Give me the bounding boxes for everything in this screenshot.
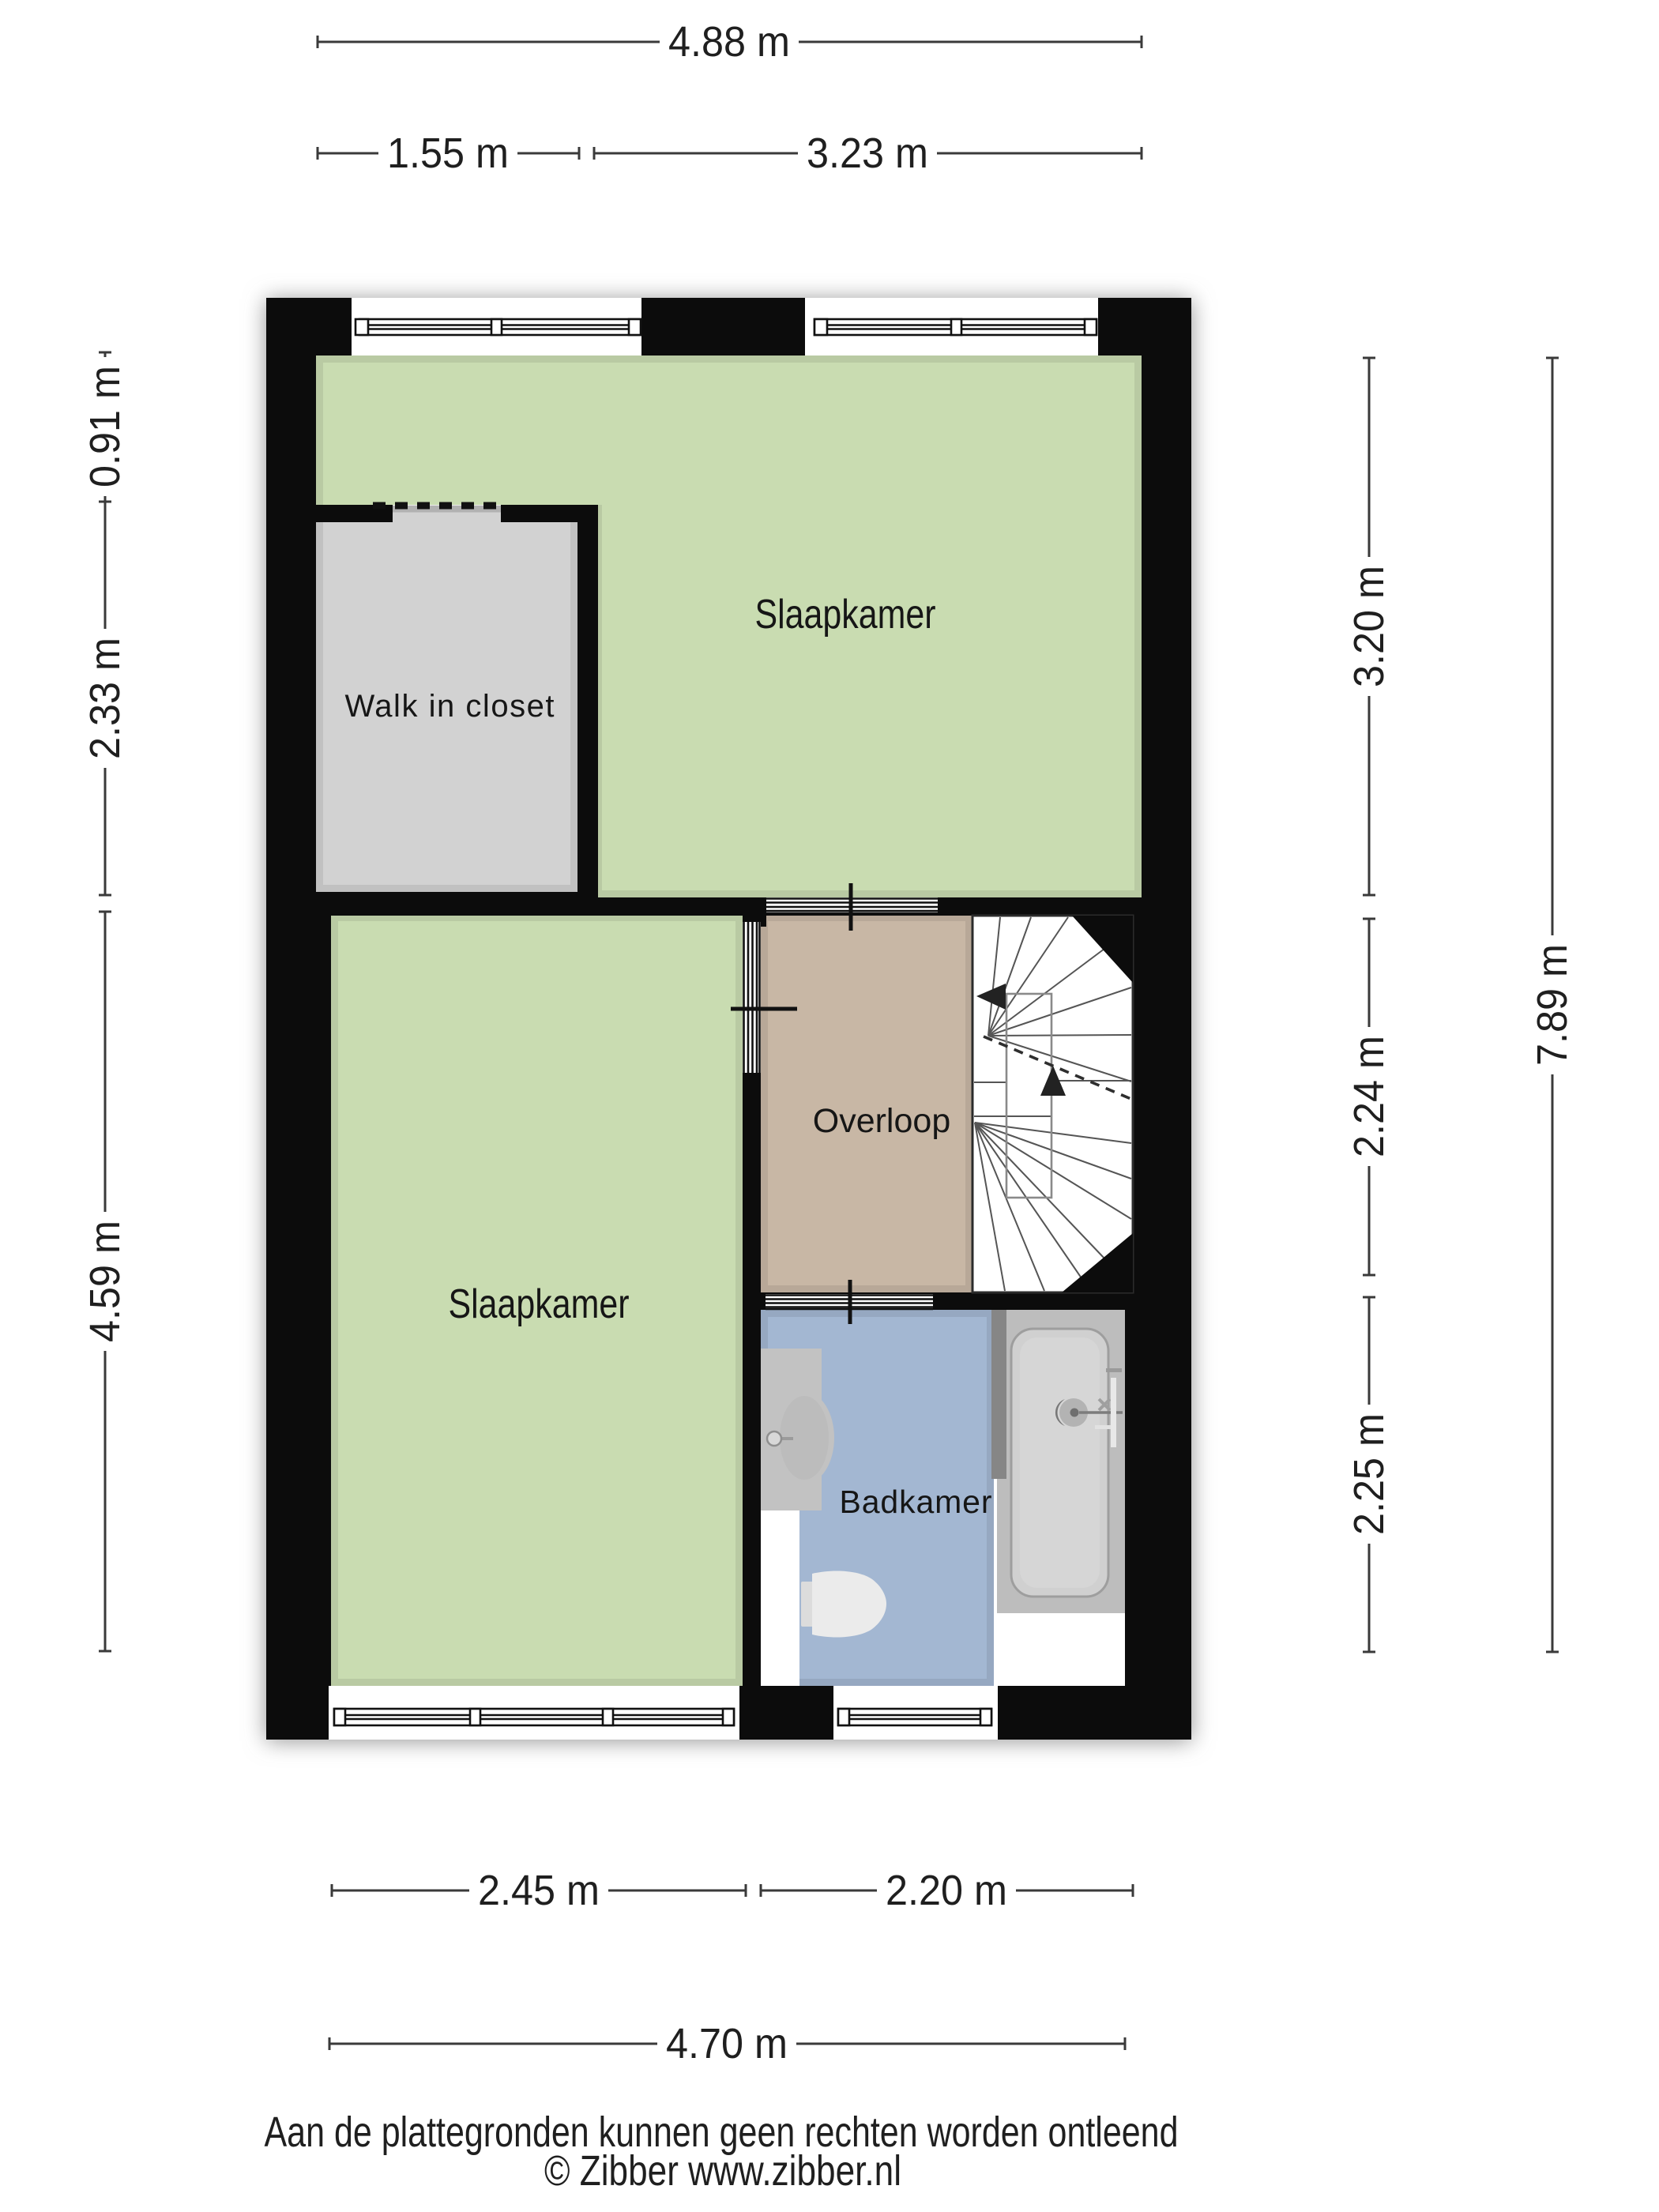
svg-text:2.33 m: 2.33 m [81,638,129,759]
svg-text:Badkamer: Badkamer [840,1484,992,1520]
svg-text:4.88 m: 4.88 m [668,18,790,66]
svg-text:0.91 m: 0.91 m [81,366,129,487]
svg-text:3.20 m: 3.20 m [1345,566,1393,687]
svg-text:2.45 m: 2.45 m [478,1867,600,1914]
svg-text:© Zibber www.zibber.nl: © Zibber www.zibber.nl [544,2147,901,2195]
svg-text:Slaapkamer: Slaapkamer [449,1281,630,1327]
svg-text:2.25 m: 2.25 m [1345,1413,1393,1535]
svg-text:3.23 m: 3.23 m [807,130,928,177]
svg-text:Slaapkamer: Slaapkamer [755,592,936,638]
svg-text:1.55 m: 1.55 m [387,130,509,177]
svg-text:Overloop: Overloop [813,1102,950,1140]
svg-text:2.24 m: 2.24 m [1345,1036,1393,1157]
svg-text:Walk in closet: Walk in closet [345,689,555,724]
svg-text:4.70 m: 4.70 m [666,2020,788,2067]
svg-text:2.20 m: 2.20 m [886,1867,1007,1914]
svg-text:4.59 m: 4.59 m [81,1221,129,1342]
svg-text:7.89 m: 7.89 m [1529,944,1576,1066]
